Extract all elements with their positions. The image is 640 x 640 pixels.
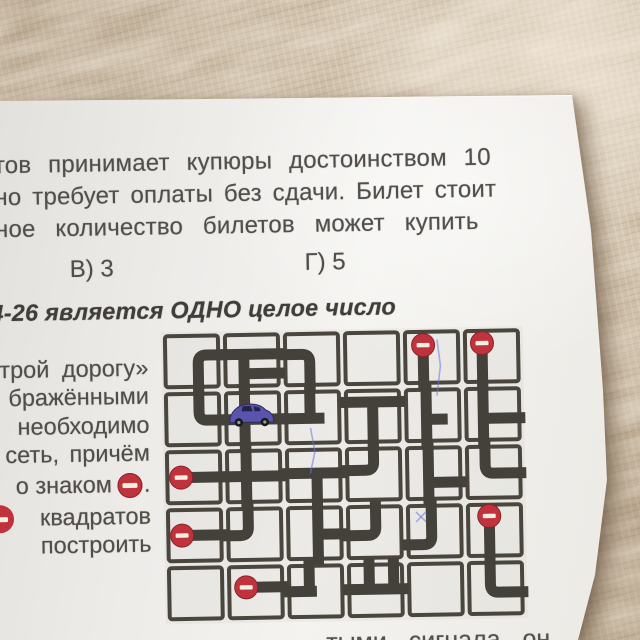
puzzle-paper [161, 326, 528, 624]
section-heading: 4-26 является ОДНО целое число [0, 293, 396, 327]
page-content: тов принимает купюры достоинством 10 но … [0, 0, 640, 640]
answer-option-g: Г) 5 [304, 248, 345, 277]
side-text-line-with-sign: о знаком. [15, 471, 150, 500]
side-text-line: построить [41, 531, 152, 560]
side-text-line: сеть, причём [5, 440, 150, 470]
edge-partial-no-entry-sign-icon [0, 505, 14, 533]
textbook-page: тов принимает купюры достоинством 10 но … [0, 0, 640, 640]
paragraph-line-2: но требует оплаты без сдачи. Билет стоит [0, 176, 496, 213]
answer-option-v: В) 3 [69, 255, 113, 284]
paragraph-line-1: тов принимает купюры достоинством 10 [0, 144, 491, 181]
side-text-line: трой дорогу» [0, 355, 149, 385]
side-text-line: бражёнными [8, 383, 149, 412]
side-text-column: трой дорогу» бражёнными необходимо сеть,… [0, 3, 142, 6]
side-text-line: квадратов [40, 503, 151, 532]
no-entry-sign-icon [118, 473, 143, 498]
sign-line-period: . [144, 471, 151, 497]
paragraph-line-3: ное количество билетов может купить [0, 208, 479, 244]
bottom-partial-line: тыми сигнала он [326, 625, 550, 640]
sign-line-text: о знаком [15, 471, 112, 499]
page-shadow: тов принимает купюры достоинством 10 но … [0, 0, 640, 640]
side-text-line: необходимо [17, 412, 149, 441]
photo-frame: тов принимает купюры достоинством 10 но … [0, 0, 640, 640]
